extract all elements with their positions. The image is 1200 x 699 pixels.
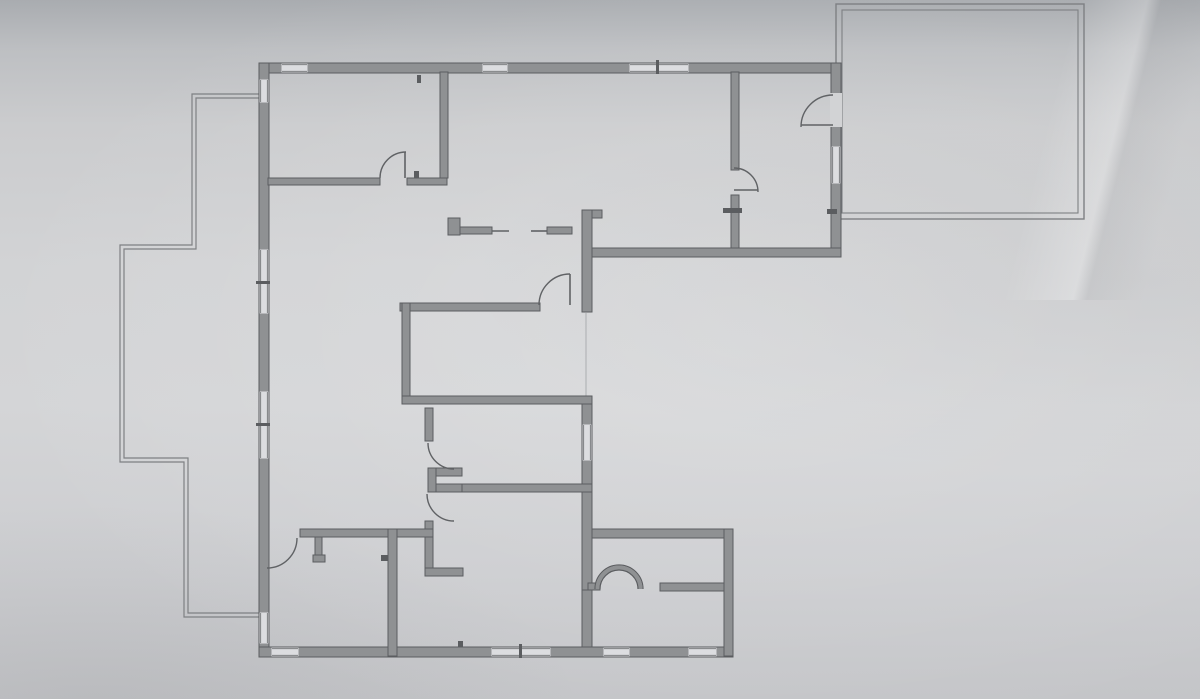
garage-outline-layer (836, 4, 1084, 219)
patio-outline-layer (120, 94, 586, 617)
arched-opening (595, 565, 643, 589)
walls-layer (259, 63, 841, 657)
door-gaps-layer (830, 93, 842, 127)
paper-photo-background (0, 0, 1200, 699)
kitchen-counters-layer (448, 218, 572, 235)
wall-tick-marks-layer (381, 75, 837, 647)
door-swings-layer (267, 95, 833, 568)
windows-layer (256, 60, 841, 658)
floor-plan-svg (0, 0, 1200, 699)
